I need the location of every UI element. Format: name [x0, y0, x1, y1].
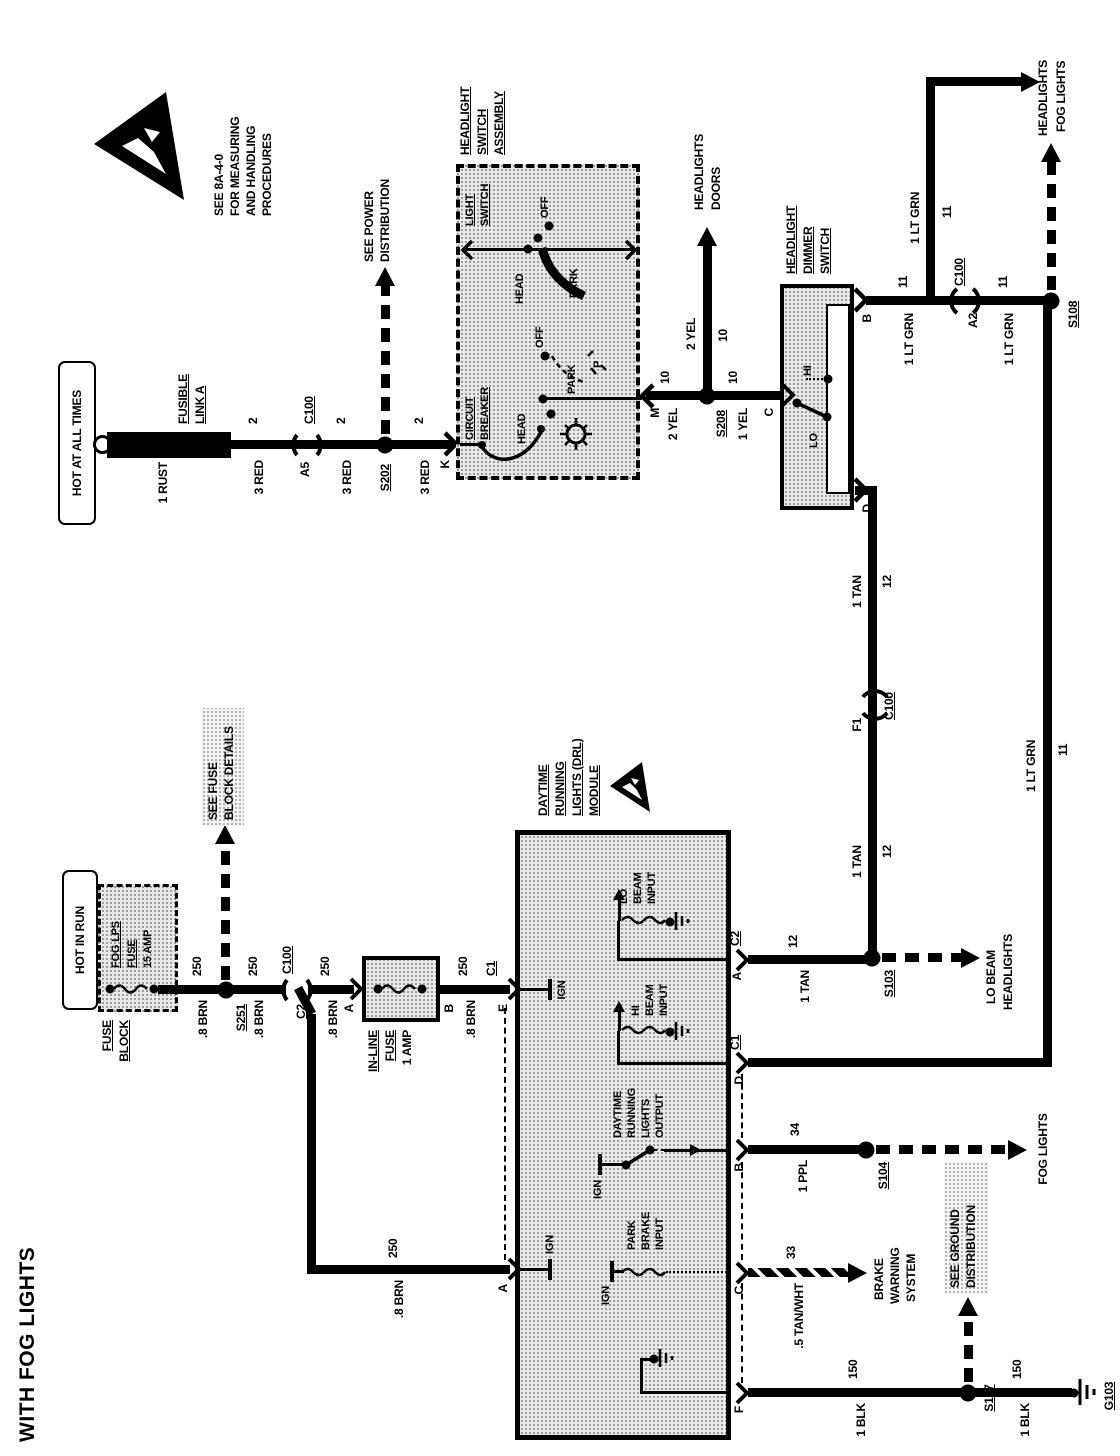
fuse-block-label2: BLOCK: [117, 1020, 131, 1062]
fusible-link-label2: LINK A: [193, 386, 207, 424]
wire-label-8brn: .8 BRN: [392, 1280, 406, 1318]
dest-foglights-label: FOG LIGHTS: [1054, 61, 1068, 132]
fog-lps-label2: FUSE: [126, 939, 138, 968]
off1-contact: [545, 222, 554, 231]
ckt150-label: 150: [846, 1360, 860, 1379]
brn-wire: [440, 985, 510, 994]
wire-label-1blk: 1 BLK: [1018, 1403, 1032, 1437]
see-power-line1: SEE POWER: [362, 191, 376, 262]
drl-title4: MODULE: [587, 765, 601, 816]
module-terminal-d-label: D: [732, 1076, 746, 1084]
wire-label-ltgrn: 1 LT GRN: [1024, 740, 1038, 792]
esd-note-line1: SEE 8A-4-0: [212, 154, 226, 216]
wire-label-1tan: 1 TAN: [850, 575, 864, 608]
see-fuse-dashed-wire: [221, 844, 230, 980]
lobeam-sense-lead: [617, 958, 729, 961]
dest-lobeam2: HEADLIGHTS: [1001, 934, 1015, 1010]
module-terminal-e-label: E: [496, 1004, 510, 1012]
wafer1-wiper-arc: [534, 234, 590, 304]
headlights-branch-drop: [930, 77, 1022, 86]
splice-s202-label: S202: [378, 464, 392, 491]
off2-contact: [541, 352, 550, 361]
hls-title3: ASSEMBLY: [492, 91, 506, 155]
ckt11-label: 11: [1056, 744, 1070, 756]
ign-label: IGN: [592, 1180, 604, 1199]
splice-s103-label: S103: [882, 970, 896, 997]
hibeam-ground-icon: [674, 1020, 692, 1042]
dimmer-hi-contact: [824, 375, 833, 384]
splice-s208-label: S208: [714, 410, 728, 437]
lobeam-label1: LO: [618, 889, 630, 904]
terminal-m-label: M: [648, 408, 662, 418]
wire-label-ltgrn: 1 LT GRN: [902, 313, 916, 365]
see-fuse-line1: SEE FUSE: [206, 762, 220, 820]
diagram-canvas: WITH FOG LIGHTS SEE 8A-4-0 FOR MEASURING…: [0, 0, 1120, 1456]
dest-brake3: SYSTEM: [904, 1254, 918, 1302]
esd-warning-icon: [92, 84, 200, 204]
wire-label-tanwht: .5 TAN/WHT: [792, 1283, 806, 1349]
dimmer-title3: SWITCH: [818, 228, 832, 274]
ckt12-label: 12: [880, 845, 894, 858]
module-terminal-a-top-label: A: [496, 1284, 510, 1292]
terminal-k-label: K: [438, 460, 452, 468]
ckt2-label: 2: [334, 418, 348, 424]
hls-title2: SWITCH: [475, 109, 489, 155]
head-to-m-lead: [545, 398, 642, 401]
wire-label-1rust: 1 RUST: [156, 462, 170, 503]
module-connector-c1-label: C1: [728, 1035, 742, 1050]
off2-label: OFF: [534, 327, 546, 348]
fusible-link-bar: [107, 432, 231, 458]
module-terminal-d-icon: [736, 1052, 748, 1074]
ign-feed-lead: [520, 1268, 550, 1271]
tan-wire: [868, 490, 877, 962]
hls-title1: HEADLIGHT: [458, 87, 472, 155]
drl-title3: LIGHTS (DRL): [570, 738, 584, 816]
dest-headlights-doors2: DOORS: [709, 167, 723, 210]
foglights-arrow-icon: [1041, 143, 1061, 162]
parkbrake-label2: BRAKE: [640, 1212, 652, 1250]
ltgrn-long-wire-h: [1043, 296, 1052, 1067]
g103-label: G103: [1102, 1382, 1116, 1411]
foglights-dashed-wire: [1047, 160, 1056, 290]
see-power-arrow-icon: [375, 267, 395, 286]
inline-fuse-a-icon: [350, 978, 362, 1000]
ltgrn-long-wire-v: [748, 1058, 1052, 1067]
wire-label-1ppl: 1 PPL: [796, 1160, 810, 1192]
ckt150-label: 150: [1010, 1360, 1024, 1379]
fog-lps-label1: FOG LPS: [110, 921, 122, 968]
branch-ckt-label: 11: [940, 206, 954, 218]
f-ground-lead: [640, 1391, 730, 1394]
ckt250-label: 250: [456, 957, 470, 976]
foglights-arrow2-icon: [1008, 1140, 1027, 1160]
ckt11-label: 11: [996, 276, 1010, 288]
foglights-dashed-wire2: [876, 1145, 1008, 1154]
inline-fuse-label1: IN-LINE: [366, 1030, 380, 1072]
ckt250-label: 250: [190, 957, 204, 976]
drl-out-label1: DAYTIME: [612, 1091, 624, 1138]
module-connector-c2-label: C2: [728, 931, 742, 946]
dimmer-lo-label: LO: [808, 433, 820, 448]
doors-arrow-icon: [697, 227, 717, 246]
splice-s104: [858, 1142, 875, 1159]
wire-label-1yel: 1 YEL: [736, 408, 750, 440]
dest-headlights-doors1: HEADLIGHTS: [692, 134, 706, 210]
fuse-element-icon: [104, 980, 160, 998]
dest-headlights-label: HEADLIGHTS: [1036, 60, 1050, 136]
wire-label-ltgrn: 1 LT GRN: [1002, 313, 1016, 365]
see-ground-dashed-wire: [964, 1316, 973, 1382]
wire-label-3red: 3 RED: [340, 460, 354, 494]
f-ground-lead: [640, 1358, 643, 1394]
hibeam-label3: INPUT: [658, 984, 670, 1016]
head2-label: HEAD: [516, 414, 528, 444]
connector-c1-dashed-edge-top: [504, 1008, 506, 1260]
fog-lps-label3: 15 AMP: [142, 930, 154, 968]
wire-label-2yel: 2 YEL: [666, 408, 680, 440]
inline-fuse-terminal-a: A: [342, 1004, 356, 1012]
drl-out-label4: OUTPUT: [654, 1094, 666, 1138]
hot-in-run-label: HOT IN RUN: [73, 906, 87, 974]
wire-label-8brn: .8 BRN: [464, 1000, 478, 1038]
ign-label: IGN: [600, 1286, 612, 1305]
f-ground-icon: [658, 1347, 676, 1369]
dimmer-wiper-arm: [795, 392, 831, 422]
brn-branch-wire-h: [307, 1014, 316, 1270]
ckt250-label: 250: [318, 957, 332, 976]
wire-label-3red: 3 RED: [418, 460, 432, 494]
splice-s108-label: S108: [1066, 301, 1080, 328]
esd-note-line4: PROCEDURES: [260, 133, 274, 216]
see-fuse-arrow-icon: [215, 825, 235, 844]
blk-wire: [748, 1388, 966, 1397]
drl-title2: RUNNING: [553, 761, 567, 816]
drl-out-label2: RUNNING: [626, 1088, 638, 1138]
module-terminal-a-top-icon: [508, 1258, 520, 1280]
lobeam-label2: BEAM: [632, 872, 644, 904]
splice-s202: [377, 437, 394, 454]
wire-label-1tan: 1 TAN: [798, 970, 812, 1003]
ppl-wire: [748, 1145, 864, 1154]
contact-dot: [547, 410, 556, 419]
ckt12-label: 12: [880, 575, 894, 588]
parkbrake-label1: PARK: [626, 1220, 638, 1250]
ckt12-label: 12: [786, 935, 800, 948]
terminal-a2-label: A2: [966, 313, 980, 328]
circuit-breaker-label1: CIRCUIT: [464, 397, 476, 440]
module-terminal-c-label: C: [732, 1286, 746, 1294]
dest-lobeam1: LO BEAM: [984, 950, 998, 1004]
drl-switch-arm: [622, 1144, 656, 1170]
inline-fuse-terminal-b: B: [442, 1004, 456, 1012]
off1-label: OFF: [539, 197, 551, 218]
module-terminal-f-label: F: [732, 1406, 746, 1413]
hot-at-all-times-label: HOT AT ALL TIMES: [70, 390, 84, 496]
wire-label-3red: 3 RED: [252, 460, 266, 494]
esd-note-line3: AND HANDLING: [244, 126, 258, 216]
contact-dot: [524, 245, 533, 254]
dest-foglights2-label: FOG LIGHTS: [1036, 1113, 1050, 1184]
ckt10-label: 10: [726, 371, 740, 384]
inline-fuse-label2: FUSE: [383, 1030, 397, 1061]
brn-branch-wire-v: [307, 1265, 510, 1274]
ign-tap-bar: [548, 1259, 552, 1280]
hot-in-run-box: HOT IN RUN: [62, 870, 98, 1010]
module-terminal-f-icon: [736, 1382, 748, 1404]
wiring-diagram-page: WITH FOG LIGHTS SEE 8A-4-0 FOR MEASURING…: [0, 0, 1120, 1456]
module-terminal-e-icon: [508, 978, 520, 1000]
page-title: WITH FOG LIGHTS: [16, 1247, 40, 1442]
see-fuse-line2: BLOCK DETAILS: [222, 726, 236, 820]
parkbrake-label3: INPUT: [654, 1218, 666, 1250]
see-ground-line2: DISTRIBUTION: [964, 1205, 978, 1288]
module-a-tan-wire: [748, 955, 870, 964]
splice-s104-label: S104: [876, 1162, 890, 1189]
hibeam-input-arrow: [613, 1001, 625, 1012]
lobeam-dashed-wire: [882, 953, 962, 962]
module-terminal-b-icon: [736, 1139, 748, 1161]
see-ground-line1: SEE GROUND: [948, 1209, 962, 1288]
ckt11-label: 11: [896, 276, 910, 288]
parkbrake-resistor-icon: [622, 1264, 666, 1280]
hibeam-arrow-lead: [618, 1011, 621, 1031]
lobeam-arrow-icon: [961, 948, 980, 968]
parkbrake-dotted-lead: [666, 1271, 730, 1273]
head1-label: HEAD: [514, 274, 526, 304]
inline-fuse-label3: 1 AMP: [400, 1030, 414, 1065]
fusible-link-label1: FUSIBLE: [176, 374, 190, 424]
hibeam-sense-lead: [617, 1062, 729, 1065]
terminal-f1-label: F1: [850, 718, 864, 732]
drl-out-label3: LIGHTS: [640, 1099, 652, 1138]
terminal-b-label: B: [860, 314, 874, 322]
lobeam-resistor-icon: [622, 912, 666, 928]
terminal-c-label: C: [762, 408, 776, 416]
p-rays-icon: [586, 348, 610, 376]
tanwht-wire: [748, 1268, 850, 1277]
park1-label: PARK: [568, 268, 580, 298]
dimmer-title1: HEADLIGHT: [784, 206, 798, 274]
dimmer-title2: DIMMER: [801, 227, 815, 274]
drl-output-arrow: [690, 1144, 701, 1156]
ckt2-label: 2: [412, 418, 426, 424]
connector-c100-tan-label: C100: [882, 692, 896, 720]
module-terminal-c-icon: [736, 1262, 748, 1284]
see-ground-arrow-icon: [958, 1297, 978, 1316]
dest-brake2: WARNING: [888, 1247, 902, 1304]
lobeam-sense-lead: [617, 921, 620, 961]
see-power-line2: DISTRIBUTION: [378, 179, 392, 262]
esd-warning-icon-small: [608, 758, 658, 814]
light-switch-label1: LIGHT: [464, 194, 476, 226]
wire-label-1blk: 1 BLK: [854, 1403, 868, 1437]
connector-c100-grn-label: C100: [952, 258, 966, 286]
connector-c1-dashed-edge: [741, 1283, 743, 1383]
see-power-distribution-wire: [381, 286, 390, 434]
hot-at-all-times-box: HOT AT ALL TIMES: [58, 361, 96, 525]
park-feed-arrow-up: [462, 240, 473, 260]
red-feed-wire: [229, 440, 453, 449]
fuse-block-label1: FUSE: [100, 1020, 114, 1051]
hibeam-sense-lead: [617, 1031, 620, 1065]
lobeam-label3: INPUT: [646, 872, 658, 904]
wire-label-8brn: .8 BRN: [326, 1000, 340, 1038]
connector-c100-red-icon: [294, 434, 320, 456]
g103-ground-icon: [1078, 1377, 1102, 1407]
ckt10-label: 10: [658, 371, 672, 384]
module-terminal-b-label: B: [732, 1163, 746, 1171]
branch-wire-label: 1 LT GRN: [908, 192, 922, 244]
brn-wire: [158, 985, 222, 994]
inline-fuse-element-icon: [372, 980, 428, 998]
ckt250-label: 250: [246, 957, 260, 976]
circuit-breaker-icon: [480, 418, 550, 468]
headlights-branch-wire: [926, 77, 935, 299]
park2-label: PARK: [566, 364, 578, 394]
ckt33-label: 33: [784, 1246, 798, 1259]
connector-c100-red-label: C100: [302, 396, 316, 424]
wire-label-8brn: .8 BRN: [252, 1000, 266, 1038]
lobeam-ground-icon: [674, 910, 692, 932]
lamp-icon: [558, 416, 594, 452]
wire-label-8brn: .8 BRN: [196, 1000, 210, 1038]
park-feed-arrow-down: [625, 240, 636, 260]
ign-label: IGN: [544, 1235, 556, 1254]
connector-c100-grn-icon: [954, 288, 976, 314]
doors-wire-label: 2 YEL: [684, 318, 698, 350]
ign-tap-bar: [548, 979, 552, 1000]
hibeam-label2: BEAM: [644, 984, 656, 1016]
wire-label-1tan: 1 TAN: [850, 845, 864, 878]
module-terminal-a-label: A: [730, 972, 744, 980]
dest-brake1: BRAKE: [872, 1258, 886, 1300]
brn-wire: [232, 985, 286, 994]
doors-branch-wire: [703, 245, 712, 391]
ign-feed-lead: [520, 988, 550, 991]
connector-c100-brn-label: C100: [280, 946, 294, 974]
hibeam-resistor-icon: [622, 1022, 666, 1038]
connector-c1-label: C1: [484, 961, 498, 976]
doors-ckt-label: 10: [716, 329, 730, 342]
ckt250-label: 250: [386, 1239, 400, 1258]
splice-s251-label: S251: [234, 1004, 248, 1031]
module-terminal-a-icon: [736, 949, 748, 971]
dimmer-hi-label: HI: [802, 365, 814, 376]
ckt2-label: 2: [246, 418, 260, 424]
esd-note-line2: FOR MEASURING: [228, 117, 242, 216]
hibeam-label1: HI: [630, 1005, 642, 1016]
terminal-a5-label: A5: [298, 462, 312, 477]
ckt34-label: 34: [788, 1123, 802, 1136]
drl-title1: DAYTIME: [536, 765, 550, 817]
connector-c1-dashed-edge: [741, 1162, 743, 1260]
light-switch-label2: SWITCH: [479, 184, 491, 226]
blk-wire2: [974, 1388, 1072, 1397]
ign-label: IGN: [556, 981, 568, 1000]
brake-arrow-icon: [848, 1263, 867, 1283]
